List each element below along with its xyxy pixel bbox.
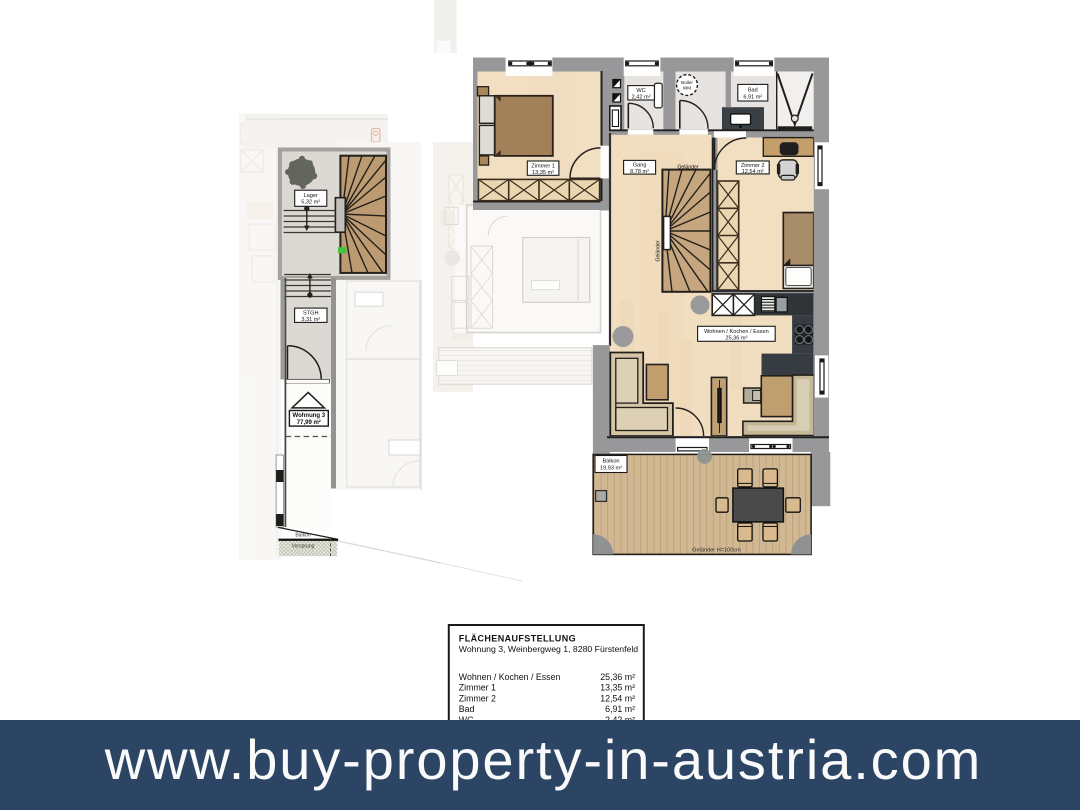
svg-text:Balkon: Balkon bbox=[602, 459, 619, 465]
svg-text:5,32 m²: 5,32 m² bbox=[301, 200, 320, 206]
svg-text:WC: WC bbox=[636, 88, 645, 94]
svg-text:Zimmer 2: Zimmer 2 bbox=[741, 163, 765, 169]
svg-text:8,78 m²: 8,78 m² bbox=[630, 169, 649, 175]
svg-text:25,36 m²: 25,36 m² bbox=[725, 336, 747, 342]
svg-text:Bad: Bad bbox=[459, 704, 475, 714]
svg-text:Zimmer 2: Zimmer 2 bbox=[459, 693, 496, 703]
svg-text:Wohnung 3: Wohnung 3 bbox=[293, 413, 326, 419]
svg-text:Zimmer 1: Zimmer 1 bbox=[531, 163, 555, 169]
svg-text:6,91 m²: 6,91 m² bbox=[605, 704, 635, 714]
svg-text:www.buy-property-in-austria.co: www.buy-property-in-austria.com bbox=[104, 728, 982, 791]
svg-text:25,36 m²: 25,36 m² bbox=[600, 672, 635, 682]
svg-text:12,54 m²: 12,54 m² bbox=[600, 693, 635, 703]
svg-text:3,31 m²: 3,31 m² bbox=[301, 317, 320, 323]
svg-text:13,35 m²: 13,35 m² bbox=[532, 170, 554, 176]
svg-text:Wohnen / Kochen / Essen: Wohnen / Kochen / Essen bbox=[459, 672, 561, 682]
svg-text:Geländer: Geländer bbox=[656, 240, 662, 262]
svg-text:Bad: Bad bbox=[748, 88, 758, 94]
svg-text:13,35 m²: 13,35 m² bbox=[600, 683, 635, 693]
svg-text:Geländer H=100cm: Geländer H=100cm bbox=[692, 548, 741, 554]
svg-text:Gang: Gang bbox=[633, 163, 647, 169]
svg-text:Lager: Lager bbox=[304, 193, 318, 199]
svg-text:FLÄCHENAUFSTELLUNG: FLÄCHENAUFSTELLUNG bbox=[459, 634, 576, 644]
svg-text:Balkon: Balkon bbox=[295, 533, 311, 539]
svg-text:Zimmer 1: Zimmer 1 bbox=[459, 683, 496, 693]
svg-text:77,99 m²: 77,99 m² bbox=[297, 419, 321, 426]
svg-text:WM: WM bbox=[683, 86, 691, 91]
svg-text:19,93 m²: 19,93 m² bbox=[600, 466, 622, 472]
svg-text:Wohnung 3, Weinbergweg 1, 8280: Wohnung 3, Weinbergweg 1, 8280 Fürstenfe… bbox=[459, 644, 639, 654]
svg-text:6,91 m²: 6,91 m² bbox=[743, 94, 762, 100]
svg-text:Boiler: Boiler bbox=[681, 80, 693, 85]
svg-text:Wohnen / Kochen / Essen: Wohnen / Kochen / Essen bbox=[704, 329, 769, 335]
svg-text:STGH: STGH bbox=[303, 310, 319, 316]
svg-text:2,42 m²: 2,42 m² bbox=[632, 95, 651, 101]
svg-text:12,54 m²: 12,54 m² bbox=[742, 169, 764, 175]
svg-text:Vorsprung: Vorsprung bbox=[292, 544, 315, 550]
